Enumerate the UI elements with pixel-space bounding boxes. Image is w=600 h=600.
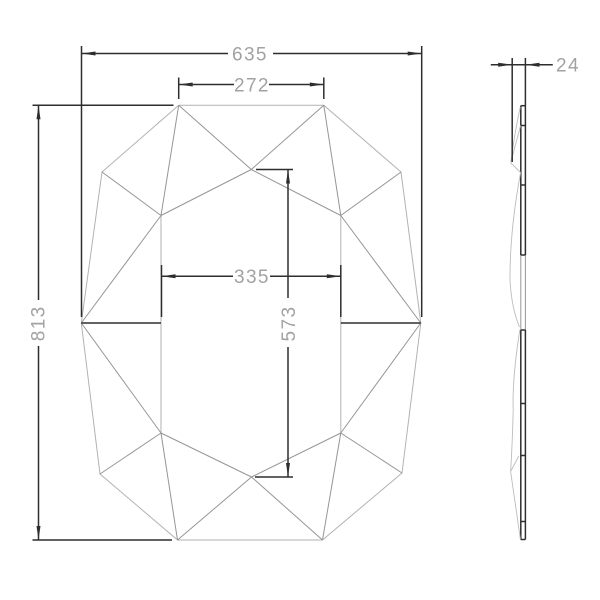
svg-text:573: 573	[279, 306, 300, 342]
svg-text:335: 335	[234, 267, 270, 288]
svg-text:272: 272	[234, 76, 270, 97]
svg-text:813: 813	[29, 305, 50, 341]
svg-text:635: 635	[232, 45, 268, 66]
svg-text:24: 24	[556, 56, 580, 77]
